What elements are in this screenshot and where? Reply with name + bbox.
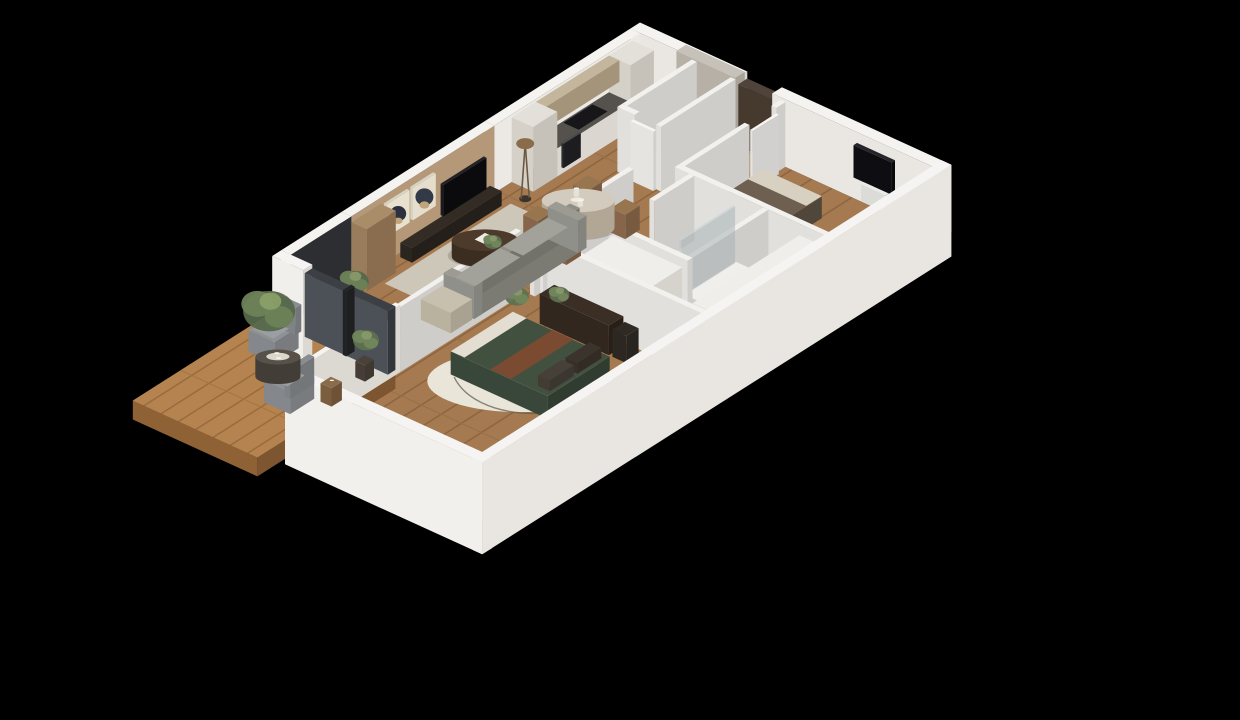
deck-tree-pot [355,355,374,381]
deck-cup-2 [276,357,281,359]
floorplan-render [0,0,1240,720]
wc-open-door [631,119,657,191]
deck-cup-1 [274,352,279,354]
floorplan-svg [0,0,1240,720]
balcony-slider-mullion [343,285,355,357]
dining-candle-1 [574,187,579,196]
dining-candle-2 [578,200,583,207]
deck-candle [330,380,334,381]
